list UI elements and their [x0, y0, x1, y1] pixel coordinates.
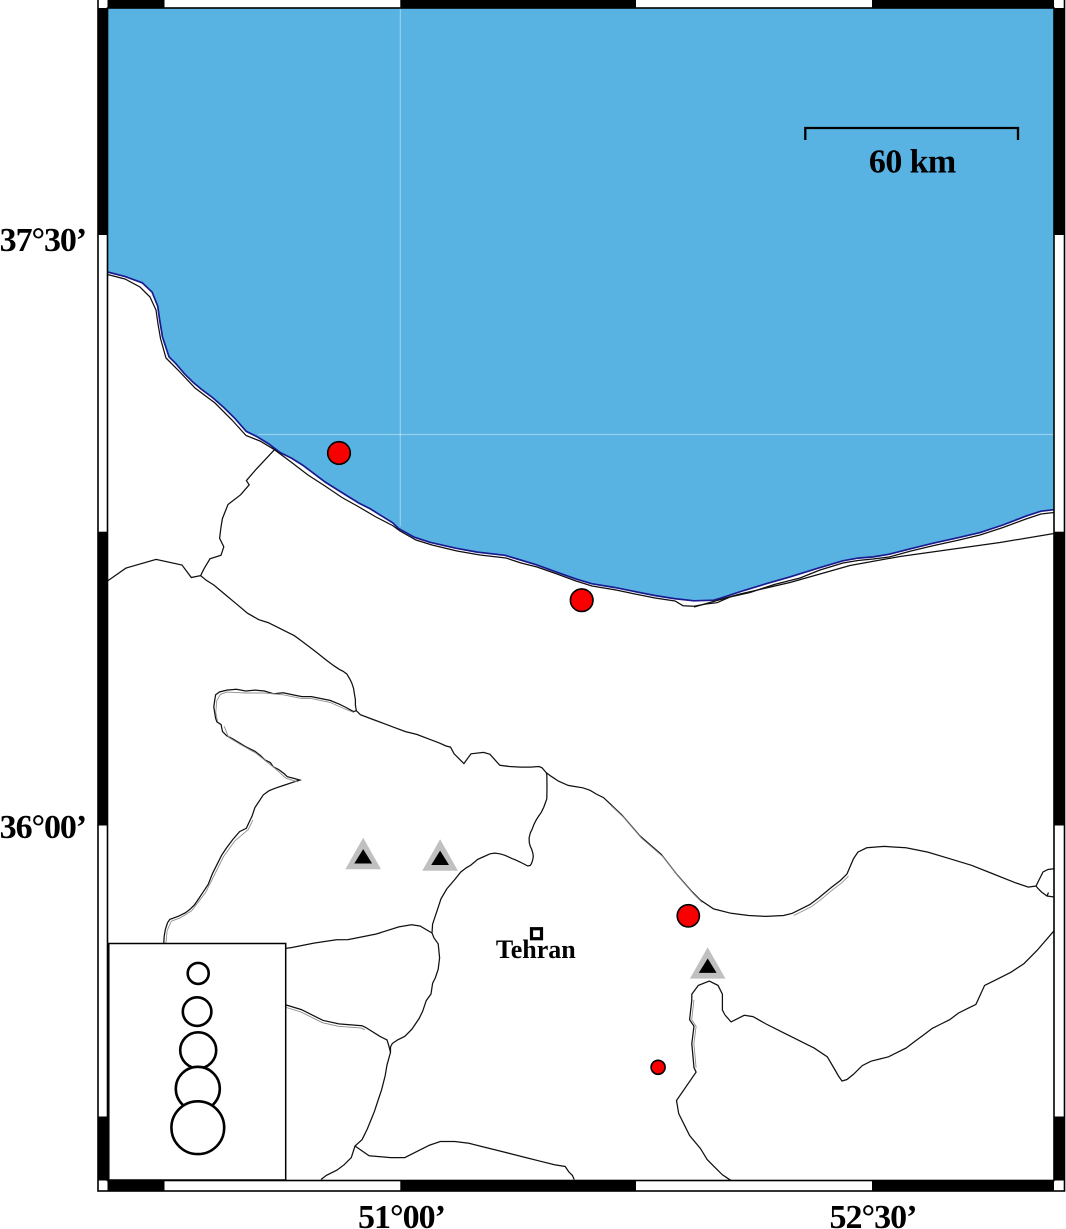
svg-text:60 km: 60 km — [869, 144, 956, 181]
svg-text:36°00’: 36°00’ — [0, 809, 86, 846]
svg-text:52°30’: 52°30’ — [830, 1199, 917, 1229]
svg-text:Tehran: Tehran — [496, 935, 576, 964]
svg-text:51°00’: 51°00’ — [358, 1199, 445, 1229]
svg-text:37°30’: 37°30’ — [0, 222, 86, 259]
